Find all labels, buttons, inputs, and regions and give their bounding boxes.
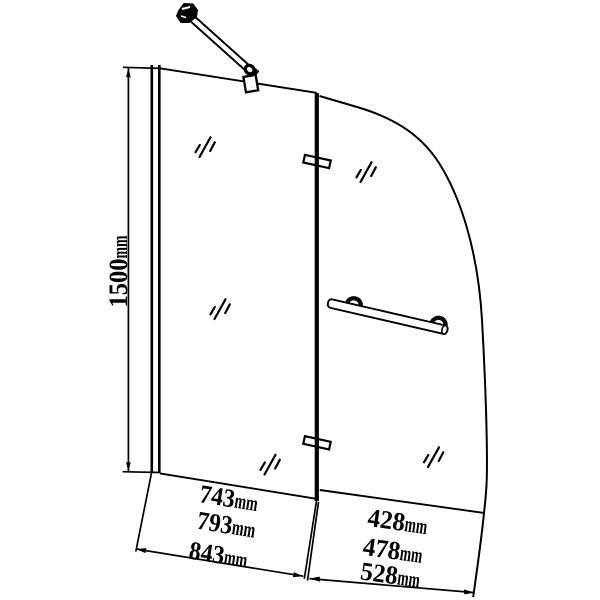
svg-text:1500mm: 1500mm [104, 236, 133, 308]
